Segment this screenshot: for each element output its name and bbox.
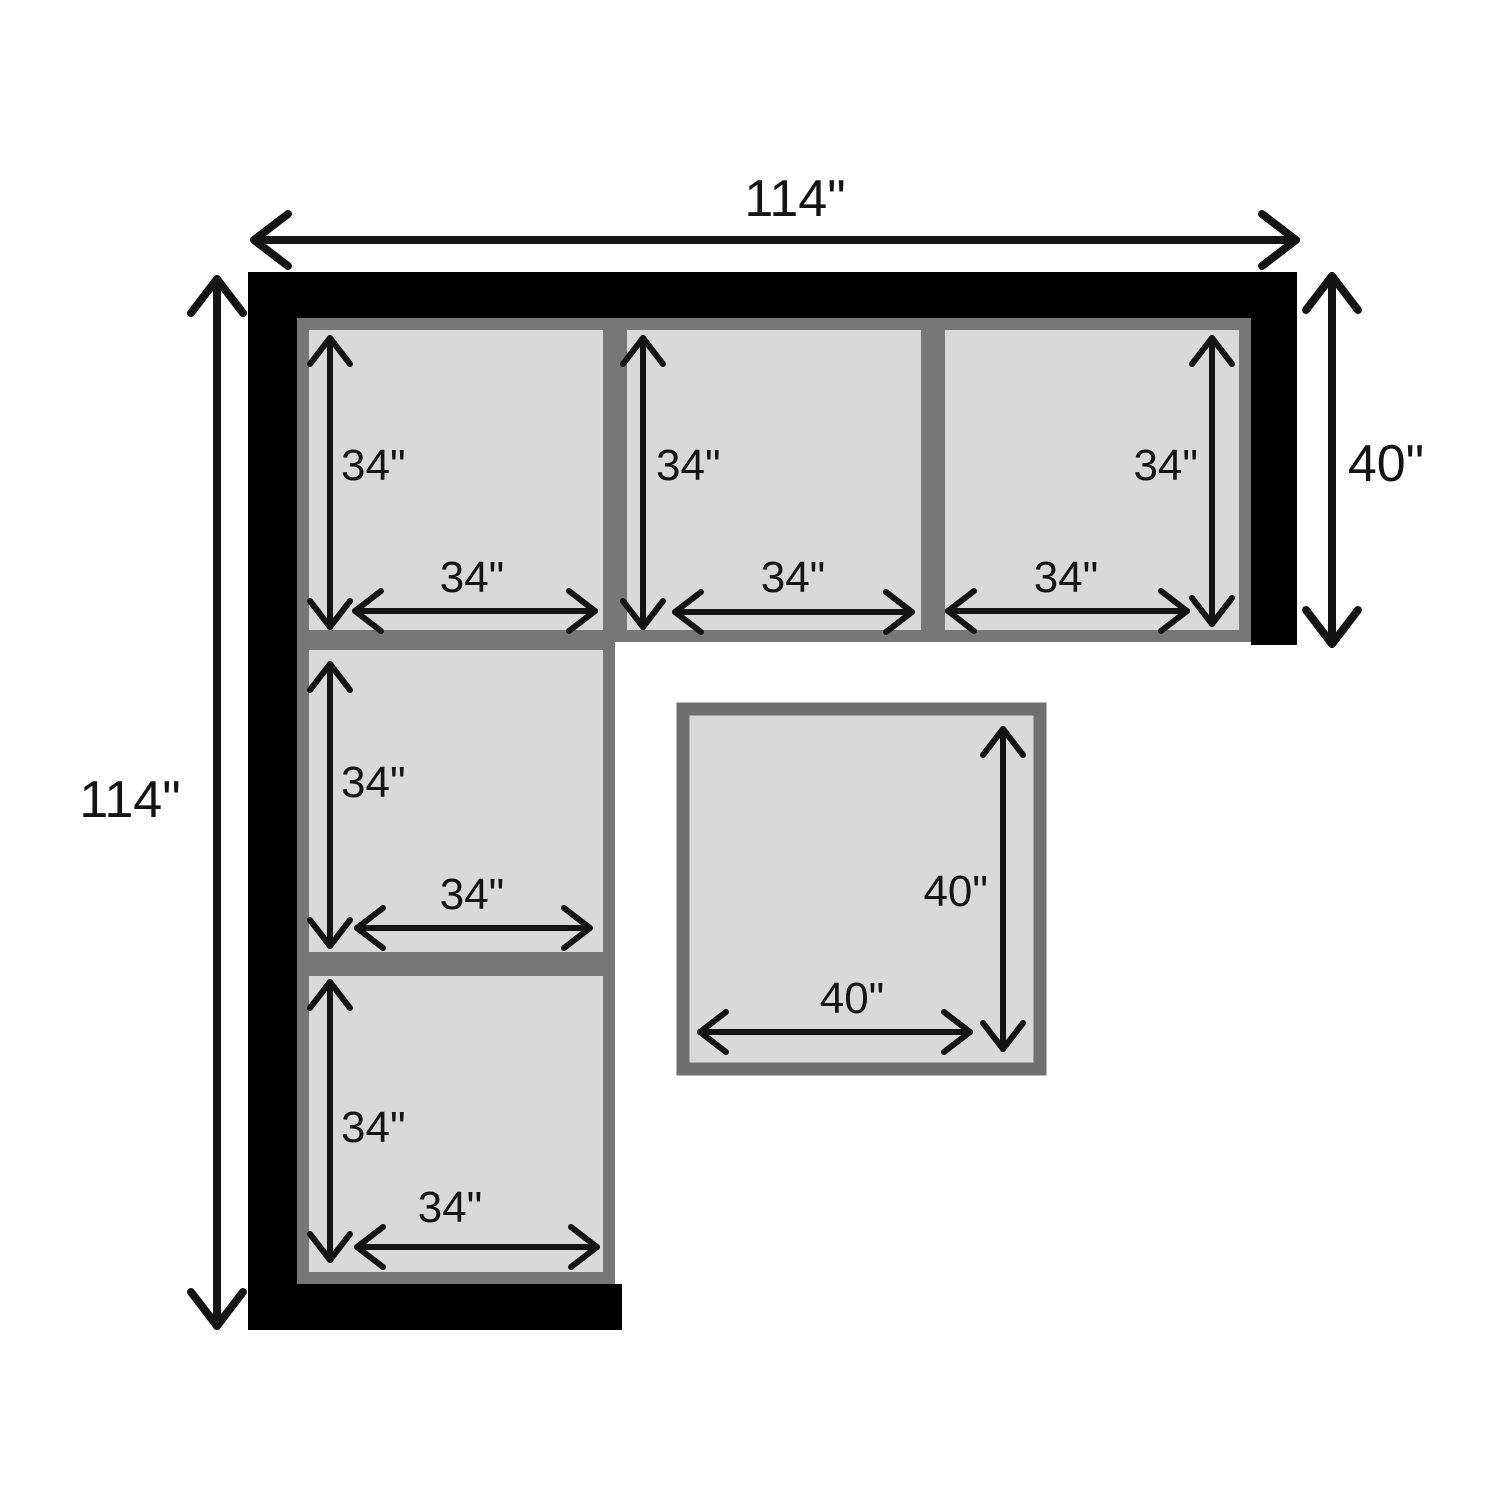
cushion-top-right-height-label: 34" — [1133, 441, 1198, 490]
overall-height-arrow — [191, 279, 243, 1326]
cushion-left-bottom-height-label: 34" — [341, 1103, 406, 1152]
ottoman-width-label: 40" — [820, 974, 885, 1023]
cushion-top-right-width-label: 34" — [1034, 553, 1099, 602]
cushion-left-middle-width-label: 34" — [440, 870, 505, 919]
overall-depth-dimension: 40" — [1306, 276, 1424, 644]
cushion-top-middle-height-label: 34" — [656, 441, 721, 490]
cushion-top-left-width-label: 34" — [440, 553, 505, 602]
cushion-top-middle-width-label: 34" — [761, 553, 826, 602]
cushion-left-bottom-width-label: 34" — [418, 1183, 483, 1232]
overall-width-dimension: 114" — [254, 170, 1296, 266]
cushion-top-left-height-label: 34" — [341, 441, 406, 490]
ottoman: 40" 40" — [683, 709, 1040, 1069]
cushion-top-left-seat: 34" 34" — [303, 324, 609, 636]
cushion-top-middle-seat: 34" 34" — [621, 324, 927, 636]
diagram-canvas: 34" 34" 34" 34" 34" — [0, 0, 1500, 1500]
cushion-left-middle-seat: 34" 34" — [303, 644, 609, 958]
ottoman-height-label: 40" — [923, 867, 988, 916]
overall-depth-label: 40" — [1348, 435, 1424, 493]
overall-width-label: 114" — [744, 170, 845, 228]
cushion-top-right-seat: 34" 34" — [939, 324, 1245, 636]
overall-height-dimension: 114" — [79, 279, 243, 1326]
overall-height-label: 114" — [79, 771, 180, 829]
cushion-left-bottom-seat: 34" 34" — [303, 970, 609, 1278]
sectional-dimension-diagram: 34" 34" 34" 34" 34" — [0, 0, 1500, 1500]
cushion-left-middle-height-label: 34" — [341, 758, 406, 807]
